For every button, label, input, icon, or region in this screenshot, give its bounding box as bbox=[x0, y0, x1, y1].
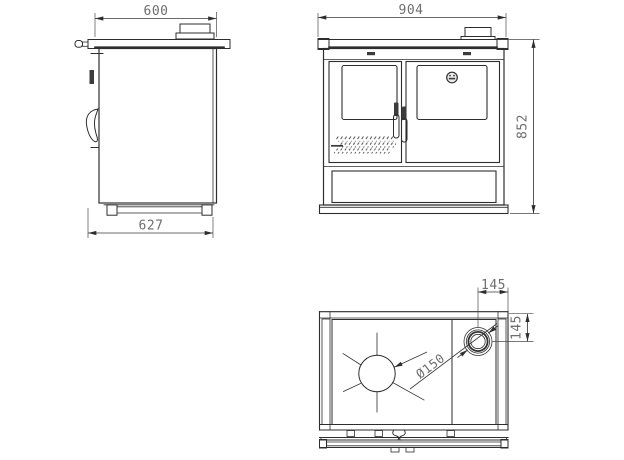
dim-label-flue-diameter: Ø150 bbox=[413, 350, 448, 381]
door-handles bbox=[394, 103, 408, 143]
dim-flue-diameter: Ø150 bbox=[410, 324, 498, 390]
flue-opening bbox=[464, 328, 492, 356]
technical-drawing-stove: 600 627 bbox=[0, 0, 624, 460]
latch-hook-left bbox=[393, 431, 399, 441]
side-door-handle bbox=[86, 109, 98, 142]
front-view: 904 bbox=[318, 3, 540, 214]
oven-thermometer bbox=[447, 72, 458, 83]
dim-label-852: 852 bbox=[516, 114, 531, 139]
side-hinge bbox=[90, 70, 95, 84]
side-flue-collar bbox=[180, 24, 210, 33]
front-body bbox=[324, 49, 505, 206]
latch-hook-right bbox=[400, 431, 406, 441]
side-view: 600 627 bbox=[75, 4, 230, 238]
dim-852: 852 bbox=[497, 40, 540, 214]
ash-drawer bbox=[332, 171, 496, 203]
front-rail-mark-left bbox=[367, 52, 375, 55]
towel-bar bbox=[320, 438, 509, 453]
dim-label-145-y: 145 bbox=[510, 315, 525, 340]
front-plinth bbox=[320, 205, 509, 214]
firebox-vent-grille bbox=[331, 137, 396, 154]
side-body bbox=[99, 49, 217, 204]
top-left-grille-strip bbox=[322, 319, 330, 425]
front-rail-mark-right bbox=[463, 52, 471, 55]
dim-904: 904 bbox=[318, 3, 506, 37]
dim-600: 600 bbox=[95, 4, 217, 37]
dim-label-600: 600 bbox=[144, 4, 169, 19]
top-view: 145 145 Ø150 bbox=[320, 278, 534, 452]
front-flue-collar bbox=[465, 28, 491, 37]
dim-label-145-x: 145 bbox=[481, 278, 506, 293]
top-right-grille-strip bbox=[498, 319, 506, 425]
side-plinth bbox=[104, 205, 214, 215]
dim-label-904: 904 bbox=[399, 3, 424, 18]
firebox-door-window bbox=[342, 66, 397, 120]
side-flue-collar-base bbox=[176, 33, 214, 39]
top-front-rail bbox=[320, 425, 509, 441]
drawing-svg: 600 627 bbox=[0, 0, 624, 460]
dim-label-627: 627 bbox=[139, 219, 164, 234]
side-towel-rail-knob bbox=[75, 41, 83, 48]
